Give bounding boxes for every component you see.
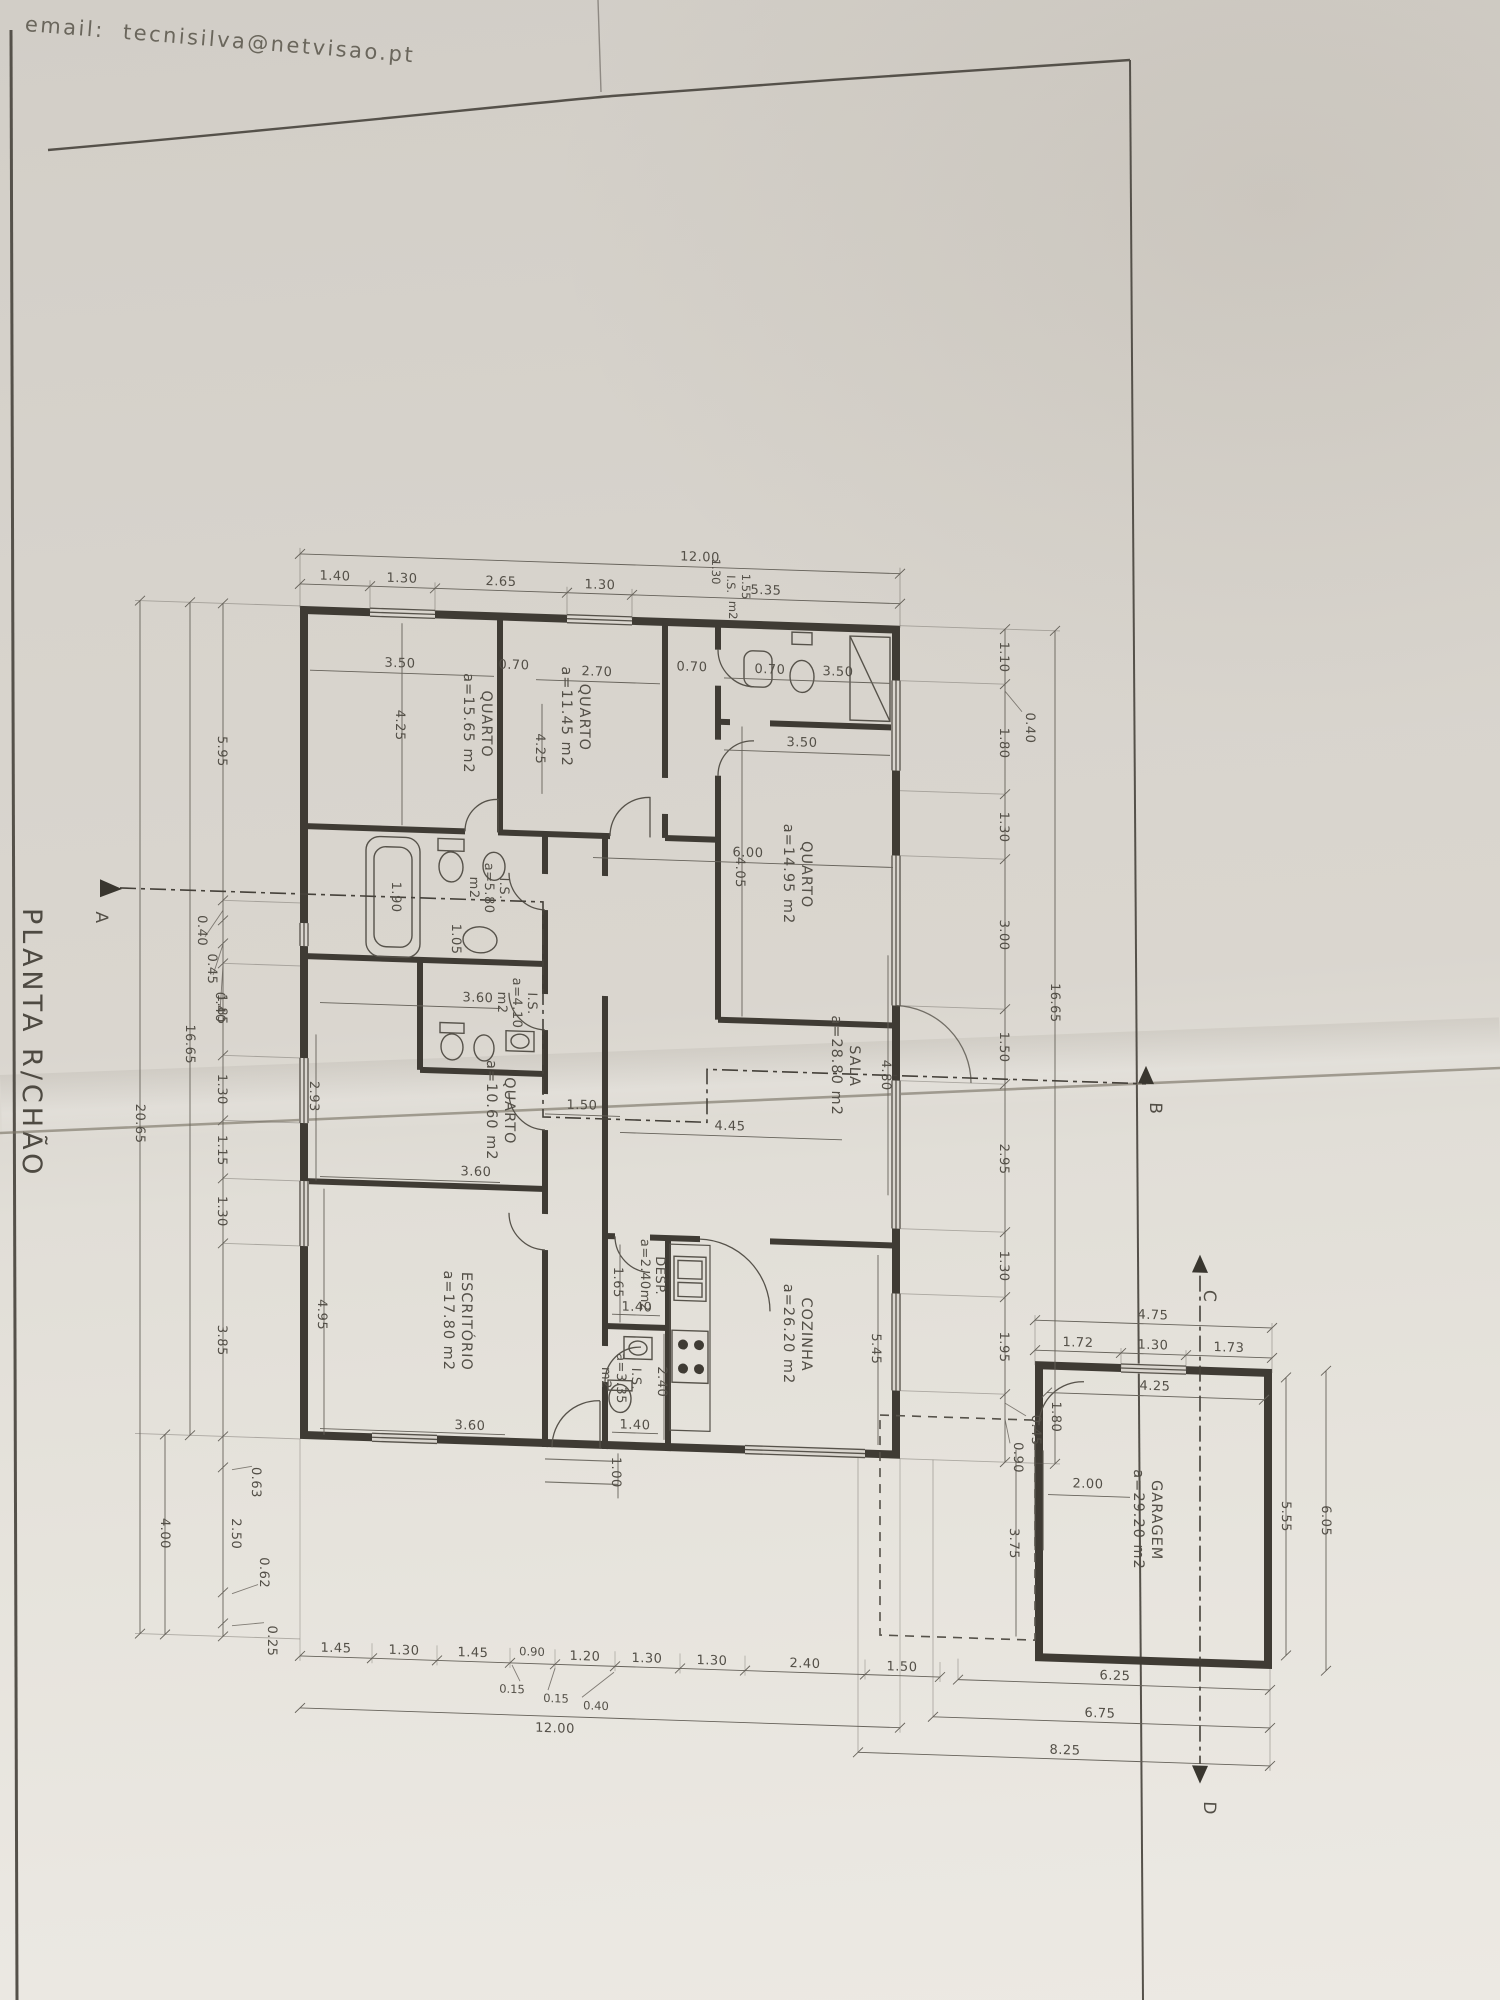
dim-label: 20.65 (132, 1104, 147, 1144)
dim-label: 5.95 (214, 736, 229, 767)
dim-label: 3.60 (455, 1418, 486, 1434)
dim-label: 4.25 (392, 709, 407, 740)
dim-label: 2.40 (790, 1656, 821, 1672)
room-label-sala: SALAa=28.80 m2 (828, 1015, 862, 1117)
dim-label: 5.45 (868, 1333, 883, 1364)
section-label-b: B (1145, 1102, 1165, 1114)
dim-label: 2.65 (486, 574, 517, 590)
dim-label: 0.70 (677, 659, 708, 675)
section-label-d: D (1199, 1801, 1219, 1815)
dim-label: 0.45 (1028, 1414, 1043, 1445)
dim-label: 4.75 (1138, 1308, 1169, 1324)
dim-label: 5.55 (1278, 1501, 1293, 1532)
dim-label: 0.90 (519, 1644, 545, 1659)
dim-label: 1.80 (996, 727, 1011, 758)
room-name: DESP. (652, 1256, 667, 1295)
sheet-border (11, 0, 1143, 2000)
dim-label: 1.40 (320, 569, 351, 585)
dim-label: 2.93 (306, 1081, 321, 1112)
dim-label: 1.72 (1063, 1335, 1094, 1351)
dim-label: 1.73 (1214, 1340, 1245, 1356)
stove-burners (678, 1339, 704, 1374)
dim-label: 1.45 (321, 1641, 352, 1657)
room-unit: m2 (598, 1367, 613, 1389)
room-name: QUARTO (798, 841, 814, 909)
toilet-icon (439, 851, 463, 882)
toilet-icon (790, 660, 814, 693)
dim-label: 2.00 (1073, 1476, 1104, 1492)
dim-label: 0.40 (583, 1698, 609, 1713)
section-arrow-c (1192, 1254, 1208, 1273)
dim-label: 1.30 (389, 1643, 420, 1659)
section-arrow-d (1192, 1765, 1208, 1784)
dim-label: 16.65 (182, 1024, 197, 1064)
dim-label: 1.15 (214, 1135, 229, 1166)
dim-label: 0.40 (194, 915, 209, 946)
dim-label: 1.30 (996, 811, 1011, 842)
room-name: I.S. (628, 1368, 643, 1391)
room-area: a=17.80 m2 (440, 1270, 456, 1371)
room-label-is-410: I.S.a=4.10m2 (494, 977, 539, 1029)
dim-label: 0.45 (204, 953, 219, 984)
dimension-labels: 12.00 1.40 1.30 2.65 1.30 5.35 3.50 0.70… (132, 531, 1333, 1767)
room-area: a=15.65 m2 (460, 673, 476, 774)
dim-label: 0.90 (1010, 1442, 1025, 1473)
dim-label: 16.65 (1047, 983, 1062, 1023)
windows (300, 606, 1186, 1468)
room-name: QUARTO (501, 1077, 517, 1145)
sink-icon (463, 926, 497, 953)
room-name: SALA (846, 1045, 862, 1087)
dim-label: 1.50 (996, 1031, 1011, 1062)
dim-label: 1.65 (610, 1267, 625, 1298)
floor-plan-sheet: A B C D 12.00 1.40 1.30 2.65 1.30 5.35 3… (0, 0, 1500, 2000)
dim-label: 4.95 (314, 1299, 329, 1330)
dim-label: 8.25 (1050, 1743, 1081, 1759)
dim-label: 1.30 (996, 1250, 1011, 1281)
room-unit: m2 (466, 876, 481, 898)
room-label-is-top-dim1: 1.30 (709, 559, 723, 585)
dim-label: 1.30 (697, 1653, 728, 1669)
dim-label: 0.15 (543, 1691, 569, 1706)
room-label-garagem: GARAGEMa=29.20 m2 (1130, 1469, 1164, 1571)
dim-label: 0.62 (256, 1557, 271, 1588)
section-arrow-b (1138, 1066, 1154, 1085)
room-area: a=3.35 (613, 1353, 628, 1404)
room-name: I.S. (496, 877, 511, 900)
kitchen-counter (670, 1244, 710, 1431)
dim-label: 3.50 (823, 664, 854, 680)
room-area: a=2.40m2 (637, 1239, 652, 1312)
room-area: a=26.20 m2 (780, 1283, 796, 1384)
dimension-lines (135, 542, 1331, 1772)
dim-label: 1.30 (387, 571, 418, 587)
dim-label: 3.50 (787, 735, 818, 751)
dim-label: 12.00 (535, 1721, 575, 1737)
room-area: a=14.95 m2 (780, 823, 796, 924)
room-unit: m2 (494, 991, 509, 1013)
dim-label: 1.95 (996, 1331, 1011, 1362)
dim-label: 3.60 (461, 1164, 492, 1180)
dim-label: 1.30 (585, 577, 616, 593)
dim-label: 0.15 (499, 1681, 525, 1696)
dim-label: 1.85 (214, 994, 229, 1025)
dim-label: 5.35 (751, 583, 782, 599)
dim-label: 4.25 (532, 733, 547, 764)
room-label-is-top-name: I.S. (724, 575, 738, 593)
dim-label: 1.80 (1048, 1401, 1063, 1432)
dim-label: 2.50 (228, 1518, 243, 1549)
dim-label: 0.40 (1022, 712, 1037, 743)
room-label-desp: DESP.a=2.40m2 (637, 1239, 667, 1313)
dim-label: 6.05 (1318, 1505, 1333, 1536)
room-name: GARAGEM (1148, 1480, 1164, 1561)
dim-label: 3.60 (463, 990, 494, 1006)
section-label-a: A (91, 911, 111, 924)
dim-label: 2.95 (996, 1143, 1011, 1174)
dim-label: 4.05 (732, 857, 747, 888)
dim-label: 1.00 (608, 1457, 623, 1488)
dim-label: 1.30 (214, 1196, 229, 1227)
dim-label: 0.25 (264, 1625, 279, 1656)
dim-label: 6.00 (733, 845, 764, 861)
dim-label: 6.25 (1100, 1668, 1131, 1684)
dim-label: 1.30 (214, 1074, 229, 1105)
room-name: COZINHA (798, 1297, 814, 1372)
dim-label: 1.20 (570, 1649, 601, 1665)
dim-label: 2.40 (654, 1366, 669, 1397)
room-area: a=11.45 m2 (558, 666, 574, 767)
dim-label: 1.50 (887, 1659, 918, 1675)
dim-label: 3.00 (996, 919, 1011, 950)
dim-label: 1.05 (448, 923, 463, 954)
room-area: a=29.20 m2 (1130, 1469, 1146, 1570)
dim-label: 0.70 (499, 657, 530, 673)
room-area: a=4.10 (509, 977, 524, 1028)
dim-label: 3.85 (214, 1325, 229, 1356)
doors (465, 641, 1084, 1551)
room-label-quarto-3: QUARTOa=14.95 m2 (780, 823, 814, 925)
dim-label: 1.50 (567, 1098, 598, 1114)
room-name: QUARTO (478, 690, 494, 758)
dim-label: 1.40 (620, 1417, 651, 1433)
exterior-walls (304, 610, 1268, 1665)
room-label-cozinha: COZINHAa=26.20 m2 (780, 1283, 814, 1385)
room-label-quarto-1: QUARTOa=15.65 m2 (460, 673, 494, 775)
dim-label: 4.25 (1140, 1379, 1171, 1395)
room-area: a=28.80 m2 (828, 1015, 844, 1116)
section-label-c: C (1199, 1290, 1219, 1303)
dim-label: 1.45 (458, 1645, 489, 1661)
room-label-is-top-dim2: 1.55 (739, 574, 753, 600)
dim-label: 3.50 (385, 656, 416, 672)
room-area: a=10.60 m2 (483, 1060, 499, 1161)
dim-label: 1.30 (1138, 1338, 1169, 1354)
dim-label: 6.75 (1085, 1706, 1116, 1722)
dim-label: 4.45 (715, 1119, 746, 1135)
dim-label: 0.70 (755, 662, 786, 678)
stove-icon (672, 1330, 708, 1383)
floor-plan: A B C D 12.00 1.40 1.30 2.65 1.30 5.35 3… (91, 530, 1333, 1819)
dim-label: 2.70 (582, 664, 613, 680)
dim-label: 1.90 (388, 881, 403, 912)
porch-dashed-outline (545, 1404, 1035, 1640)
dim-label: 4.80 (878, 1060, 893, 1091)
dim-label: 3.75 (1006, 1528, 1021, 1559)
room-label-is-top-unit: m2 (726, 601, 740, 620)
dim-label: 1.30 (632, 1651, 663, 1667)
room-area: a=5.80 (481, 862, 496, 913)
room-name: QUARTO (576, 683, 592, 751)
room-name: I.S. (524, 992, 539, 1015)
room-name: ESCRITÓRIO (458, 1272, 476, 1371)
room-label-escritorio: ESCRITÓRIOa=17.80 m2 (440, 1270, 476, 1372)
dim-label: 1.10 (996, 641, 1011, 672)
section-arrow-a (100, 879, 122, 898)
dim-label: 4.00 (157, 1518, 172, 1549)
dim-label: 0.63 (248, 1467, 263, 1498)
